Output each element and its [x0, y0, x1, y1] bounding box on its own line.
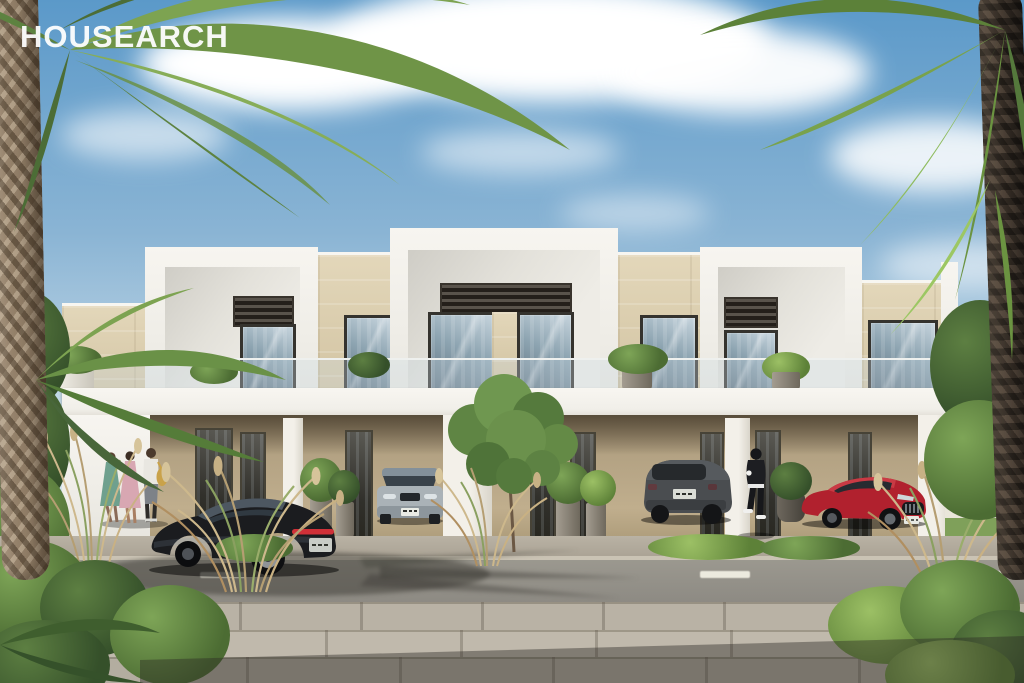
- lane-marking: [700, 571, 750, 578]
- palm-fronds-left-lower: [24, 300, 294, 495]
- balcony-plant: [608, 344, 668, 374]
- balcony-plant: [348, 352, 390, 378]
- ornamental-grass: [415, 460, 555, 568]
- curb-shrub: [760, 536, 860, 560]
- palm-fronds-right: [700, 0, 1024, 370]
- property-listing-photo: HOUSEARCH: [0, 0, 1024, 683]
- palm-fronds-corner: [0, 585, 164, 683]
- person-in-black: [736, 446, 778, 540]
- brand-watermark: HOUSEARCH: [20, 21, 229, 52]
- curb-shrub: [648, 534, 768, 560]
- dark-grey-suv: [638, 452, 736, 526]
